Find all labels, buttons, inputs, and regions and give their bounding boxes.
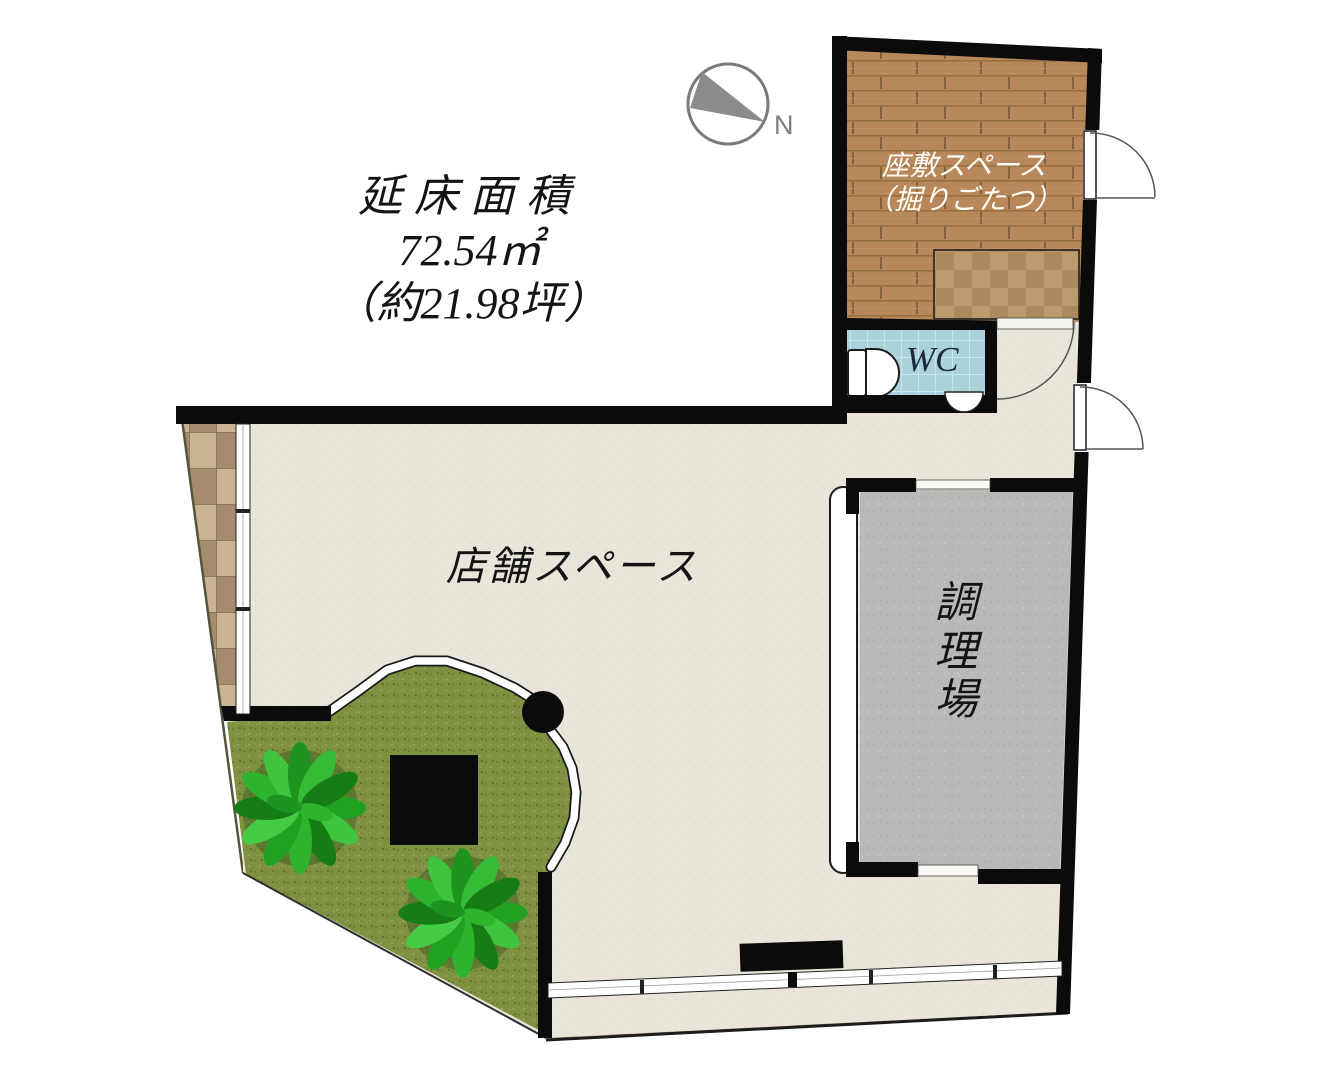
shop-room-label: 店舗スペース [400,534,745,592]
floor-area-label: 延床面積 72.54㎡ （約21.98坪） [268,170,672,331]
kotatsu-area [934,250,1079,319]
floor-area-title: 延床面積 [268,170,672,224]
entry-door-lower [1073,383,1143,452]
entry-door-upper [1083,130,1155,200]
kitchen-room-label: 調理場 [929,580,983,726]
compass-north-label: N [774,110,794,141]
zashiki-room-name: 座敷スペース [843,150,1085,184]
entrance-step [740,940,844,972]
kitchen-counter [830,487,857,873]
left-tile-walkway [181,412,243,873]
compass-icon [688,64,768,144]
left-window-band [236,424,250,714]
zashiki-room-label: 座敷スペース （掘りごたつ） [843,150,1085,217]
garden-post [522,691,564,733]
floor-area-tsubo: （約21.98坪） [268,277,672,331]
floor-plan: 延床面積 72.54㎡ （約21.98坪） N 座敷スペース （掘りごたつ） W… [0,0,1340,1072]
wc-room-label: WC [906,340,959,380]
garden-planter-square [390,755,478,845]
zashiki-room-note: （掘りごたつ） [843,184,1085,218]
toilet-icon [848,349,899,397]
floor-area-sqm: 72.54㎡ [268,224,672,278]
